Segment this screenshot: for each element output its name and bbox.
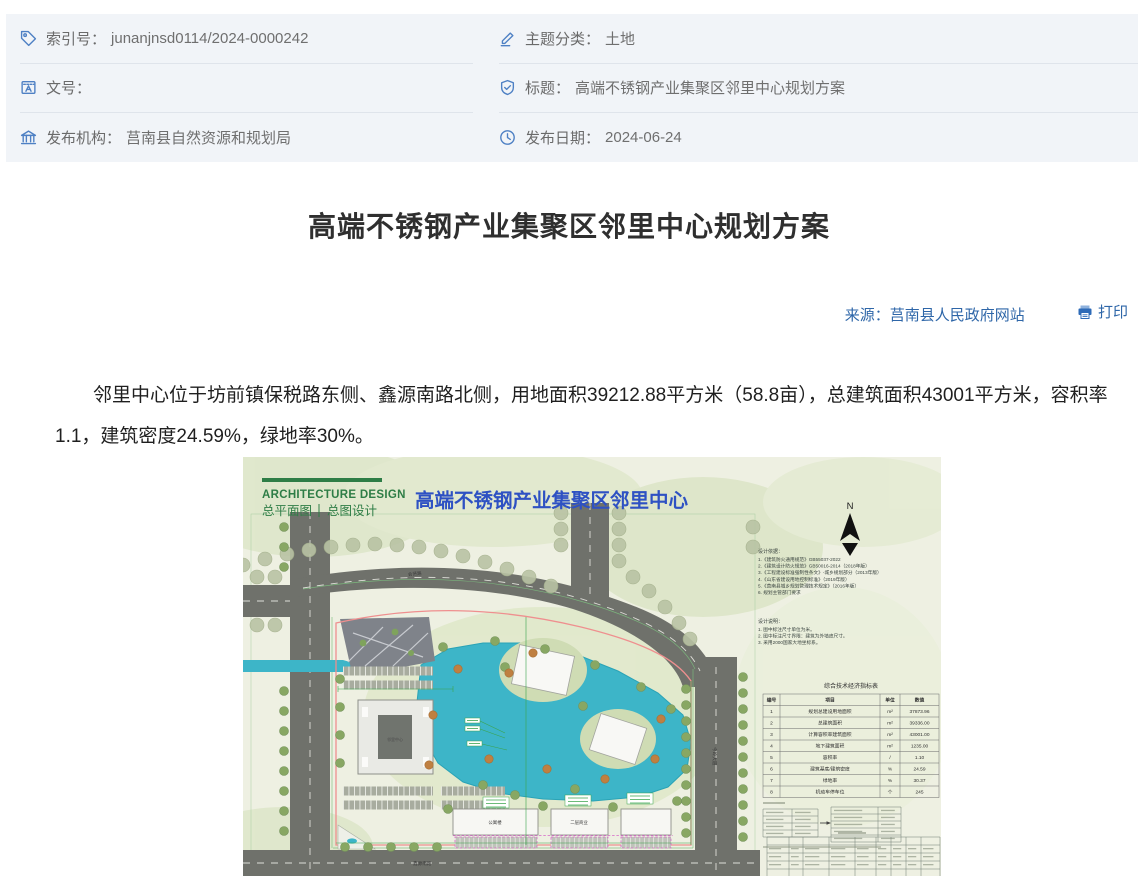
meta-label: 主题分类： [525, 28, 600, 49]
meta-item-index: 索引号： junanjnsd0114/2024-0000242 [20, 14, 473, 64]
svg-text:综合技术经济指标表: 综合技术经济指标表 [824, 682, 878, 690]
meta-value: 土地 [605, 28, 635, 49]
svg-text:今岭大道: 今岭大道 [711, 747, 718, 766]
svg-text:m²: m² [887, 732, 893, 738]
svg-text:2: 2 [770, 721, 773, 727]
svg-text:m²: m² [887, 744, 893, 750]
svg-text:编号: 编号 [767, 697, 777, 704]
meta-label: 标题： [525, 77, 570, 98]
meta-label: 文号： [46, 77, 91, 98]
meta-item-title: 标题： 高端不锈钢产业集聚区邻里中心规划方案 [499, 64, 1138, 114]
source-row: 来源：莒南县人民政府网站 打印 [0, 301, 1128, 323]
svg-text:2. 图中标注尺寸界限：建筑为外墙皮尺寸。: 2. 图中标注尺寸界限：建筑为外墙皮尺寸。 [758, 633, 848, 640]
svg-text:个: 个 [888, 790, 893, 796]
printer-icon [1077, 304, 1093, 320]
svg-text:1.10: 1.10 [915, 755, 925, 761]
svg-text:4.《山东省建设用地控制标准》（2019年版）: 4.《山东省建设用地控制标准》（2019年版） [758, 576, 850, 583]
svg-text:1.《建筑防火通用规范》GB55037-2022: 1.《建筑防火通用规范》GB55037-2022 [758, 556, 841, 563]
article-body: 邻里中心位于坊前镇保税路东侧、鑫源南路北侧，用地面积39212.88平方米（58… [55, 375, 1130, 457]
svg-text:计算容积率建筑面积: 计算容积率建筑面积 [808, 731, 851, 738]
meta-item-date: 发布日期： 2024-06-24 [499, 113, 1138, 162]
meta-item-topic: 主题分类： 土地 [499, 14, 1138, 64]
print-button[interactable]: 打印 [1077, 301, 1128, 322]
meta-label: 索引号： [46, 28, 106, 49]
svg-text:设计依据：: 设计依据： [758, 548, 783, 555]
page: { "meta": { "items": [ {"label":"索引号：","… [0, 0, 1138, 874]
svg-text:7: 7 [770, 778, 773, 784]
pencil-icon [499, 30, 516, 47]
bank-icon [20, 129, 37, 146]
svg-text:总建筑面积: 总建筑面积 [818, 720, 842, 727]
meta-item-docnumber: 文号： [20, 64, 473, 114]
svg-text:3.《工程建设标准强制性条文》-城乡规划部分（2013年版）: 3.《工程建设标准强制性条文》-城乡规划部分（2013年版） [758, 569, 882, 576]
svg-text:6: 6 [770, 767, 773, 773]
document-meta-panel: 索引号： junanjnsd0114/2024-0000242 主题分类： 土地… [6, 14, 1138, 162]
meta-label: 发布机构： [46, 127, 121, 148]
svg-text:30.37: 30.37 [913, 778, 925, 784]
svg-text:1. 图中标注尺寸单位为米。: 1. 图中标注尺寸单位为米。 [758, 626, 815, 633]
svg-text:项目: 项目 [825, 697, 835, 704]
svg-text:m²: m² [887, 709, 893, 715]
meta-item-agency: 发布机构： 莒南县自然资源和规划局 [20, 113, 473, 162]
svg-text:数值: 数值 [915, 697, 925, 704]
svg-text:1235.00: 1235.00 [911, 744, 929, 750]
plan-brand: ARCHITECTURE DESIGN [262, 489, 406, 501]
svg-text:%: % [888, 778, 893, 784]
print-label: 打印 [1098, 301, 1128, 322]
svg-text:1: 1 [770, 709, 773, 715]
svg-text:245: 245 [915, 790, 923, 796]
svg-text:37873.96: 37873.96 [909, 709, 929, 715]
svg-text:公寓楼: 公寓楼 [488, 819, 502, 826]
meta-value: 2024-06-24 [605, 129, 682, 146]
svg-text:单位: 单位 [885, 697, 895, 704]
plan-tab2: 总图设计 [327, 503, 377, 518]
meta-value: 莒南县自然资源和规划局 [126, 127, 291, 148]
svg-text:6. 规划主管部门要求: 6. 规划主管部门要求 [758, 589, 801, 596]
svg-text:鑫源南路: 鑫源南路 [413, 860, 432, 867]
svg-text:绿地率: 绿地率 [823, 777, 838, 784]
svg-text:2.《建筑设计防火规范》GB50016-2014（2018年: 2.《建筑设计防火规范》GB50016-2014（2018年版） [758, 563, 870, 570]
svg-text:4: 4 [770, 744, 773, 750]
page-title: 高端不锈钢产业集聚区邻里中心规划方案 [0, 211, 1138, 243]
site-plan-image: 邻里中心 公寓楼 二层商业 [243, 457, 941, 876]
svg-text:m²: m² [887, 721, 893, 727]
meta-value: junanjnsd0114/2024-0000242 [111, 30, 308, 47]
svg-text:3. 采用2000国家大地坐标系。: 3. 采用2000国家大地坐标系。 [758, 639, 821, 646]
svg-text:8: 8 [770, 790, 773, 796]
svg-text:N: N [847, 501, 854, 512]
shield-check-icon [499, 79, 516, 96]
entry-plaza [340, 617, 435, 669]
meta-label: 发布日期： [525, 127, 600, 148]
svg-text:规划总建设用地面积: 规划总建设用地面积 [808, 708, 851, 715]
main-building: 邻里中心 [358, 700, 433, 774]
svg-text:43001.00: 43001.00 [909, 732, 929, 738]
clock-icon [499, 129, 516, 146]
article: 高端不锈钢产业集聚区邻里中心规划方案 来源：莒南县人民政府网站 打印 邻里中心位… [0, 159, 1138, 876]
svg-text:39336.00: 39336.00 [909, 721, 929, 727]
source-text: 来源：莒南县人民政府网站 [845, 307, 1025, 324]
plan-title: 高端不锈钢产业集聚区邻里中心 [415, 489, 689, 512]
svg-text:5: 5 [770, 755, 773, 761]
svg-text:3: 3 [770, 732, 773, 738]
svg-text:设计说明：: 设计说明： [758, 618, 783, 625]
plan-tab1: 总平面图 [262, 504, 312, 518]
svg-text:邻里中心: 邻里中心 [387, 736, 403, 742]
svg-text:地下建筑面积: 地下建筑面积 [816, 743, 845, 750]
svg-text:建筑基底/建筑密度: 建筑基底/建筑密度 [810, 766, 850, 773]
svg-text:二层商业: 二层商业 [570, 819, 588, 826]
svg-text:5.《莒南县城乡规划管理技术规定》（2016年版）: 5.《莒南县城乡规划管理技术规定》（2016年版） [758, 582, 859, 589]
svg-text:容积率: 容积率 [823, 754, 838, 761]
meta-value: 高端不锈钢产业集聚区邻里中心规划方案 [575, 77, 845, 98]
svg-text:%: % [888, 767, 893, 773]
document-number-icon [20, 79, 37, 96]
svg-text:24.59: 24.59 [913, 767, 925, 773]
svg-text:机动车停车位: 机动车停车位 [816, 789, 845, 796]
tag-icon [20, 30, 37, 47]
